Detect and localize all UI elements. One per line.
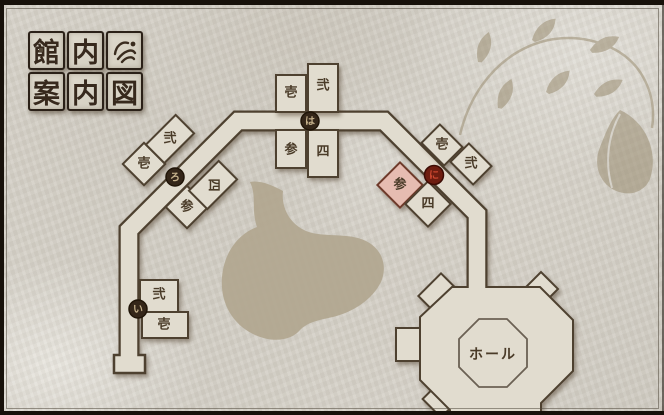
map-title-board: 館 内 案 内 図 — [28, 31, 143, 111]
marker-ni-current: に — [425, 166, 444, 185]
frame-left — [0, 0, 4, 415]
hall-wing-left — [396, 328, 422, 361]
marker-i-label: い — [133, 305, 143, 316]
room-ro-1-label: 壱 — [137, 156, 150, 172]
room-ha-1-label: 壱 — [284, 85, 297, 101]
room-i-2-label: 弐 — [152, 287, 165, 303]
room-ni-1-label: 壱 — [435, 137, 448, 153]
marker-ha-label: は — [305, 116, 315, 128]
room-ro-4-label: 四 — [206, 178, 221, 191]
title-tile: 図 — [106, 72, 143, 111]
floor-map-screen: 弐 壱 壱 弐 参 四 壱 弐 参 四 — [0, 0, 664, 415]
title-tile: 案 — [28, 72, 65, 111]
marker-ro: ろ — [166, 168, 184, 186]
room-ro-2-label: 弐 — [163, 131, 176, 147]
marker-ha: は — [301, 112, 319, 130]
title-tile-crest — [106, 31, 143, 70]
marker-i: い — [129, 300, 147, 318]
stain-decoration — [222, 182, 384, 340]
room-ha-2-label: 弐 — [316, 78, 329, 94]
marker-ni-label: に — [429, 170, 439, 182]
title-tile: 内 — [67, 31, 104, 70]
marker-ro-label: ろ — [170, 172, 180, 184]
room-ni-2-label: 弐 — [464, 156, 477, 172]
title-tile: 館 — [28, 31, 65, 70]
room-i-1-label: 壱 — [157, 317, 170, 333]
room-ni-4-label: 四 — [421, 197, 434, 212]
brush-crest-icon — [108, 33, 141, 68]
hall-label: ホール — [469, 347, 517, 363]
bud-decoration — [597, 110, 653, 193]
room-ha-4-label: 四 — [316, 145, 329, 160]
nail-dot — [39, 48, 43, 52]
room-ni-3-label: 参 — [393, 177, 407, 193]
title-tile: 内 — [67, 72, 104, 111]
room-ro-3-label: 参 — [180, 199, 194, 215]
frame-top — [0, 0, 664, 5]
room-ha-3-label: 参 — [284, 142, 298, 158]
frame-bottom — [0, 411, 664, 415]
